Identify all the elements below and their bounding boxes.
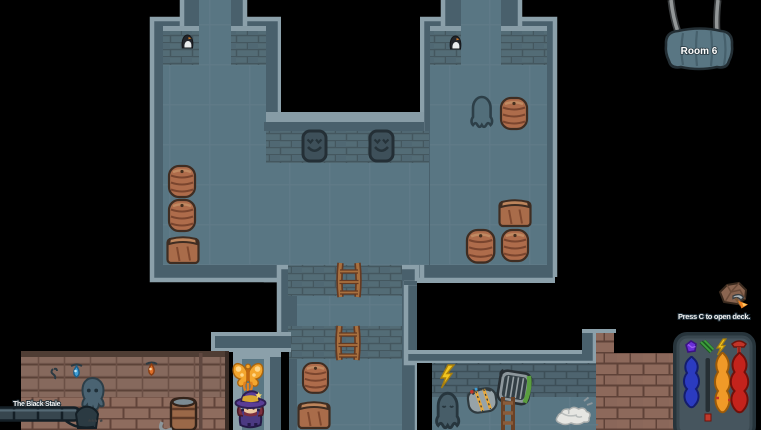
svg-text:*** *: *** *: [88, 418, 104, 427]
svg-text:Room 6: Room 6: [681, 46, 718, 57]
svg-text:Press C to open deck.: Press C to open deck.: [678, 312, 750, 321]
